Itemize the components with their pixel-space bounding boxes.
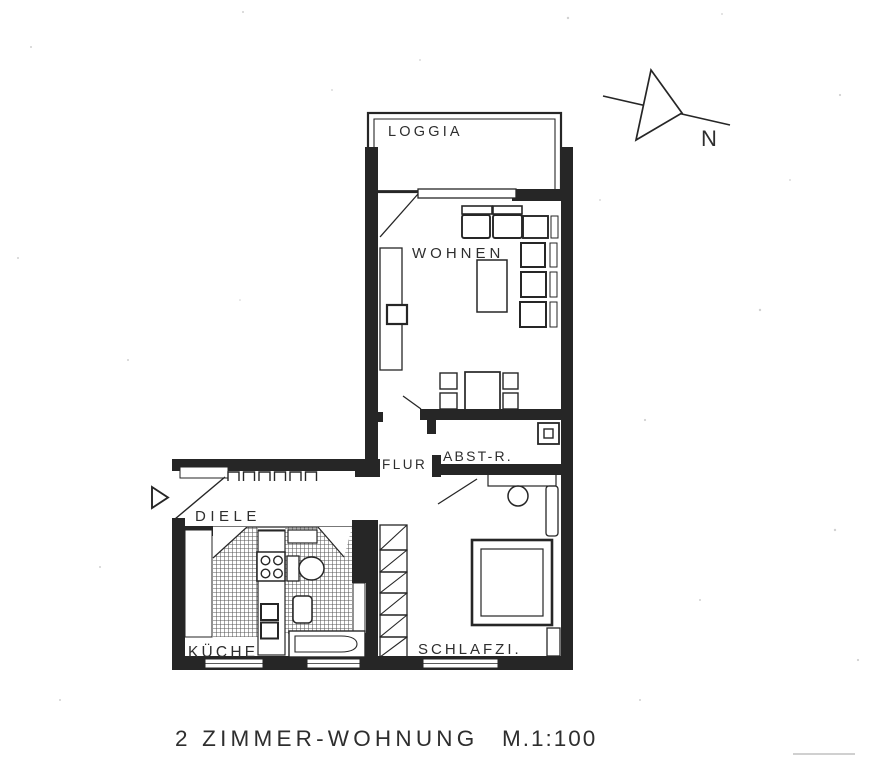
living-door-swing [403, 396, 421, 409]
bedroom-furniture [380, 473, 560, 657]
coat-hooks [228, 472, 317, 481]
balcony-door-swing [380, 194, 418, 237]
stool [508, 486, 528, 506]
living-furniture [380, 206, 558, 410]
coffee-table [477, 260, 507, 312]
entrance-door-recess [180, 467, 228, 478]
wardrobe [380, 525, 407, 657]
label-bedroom: SCHLAFZI. [418, 641, 522, 658]
wall-entry-top-junction [355, 459, 380, 477]
entrance-arrow-icon [152, 487, 168, 508]
wall-living-left [365, 147, 378, 477]
wall-seating-column [520, 243, 557, 327]
tv-box [387, 305, 407, 324]
bedroom-door-swing [438, 479, 477, 504]
armchair [523, 216, 548, 238]
label-kitchen: KÜCHE [188, 643, 258, 661]
stove [257, 552, 285, 581]
armchair-side-strip [551, 216, 558, 238]
caption: 2 ZIMMER-WOHNUNG M.1:100 [175, 726, 597, 751]
window-bath [307, 659, 360, 668]
label-loggia: LOGGIA [388, 124, 463, 140]
bathtub [289, 631, 365, 657]
nightstand [547, 628, 560, 656]
north-arrow-icon: N [603, 70, 730, 151]
caption-scale: M.1:100 [502, 726, 597, 751]
toilet [287, 556, 324, 581]
label-entry-hall: DIELE [195, 508, 261, 525]
wall-bath-bedroom-b [352, 520, 366, 583]
wall-stub-below-living [427, 420, 436, 434]
wall-loggia-divider-bar [512, 189, 561, 201]
wall-living-left-notch [378, 412, 383, 422]
floor-plan-canvas: N LOGGIA WOHNEN FLUR ABST-R. DIELE KÜCHE… [0, 0, 873, 757]
duct-niche [353, 583, 365, 633]
compass-north-label: N [701, 126, 718, 151]
window-bedroom [423, 659, 498, 668]
balcony-door-leaf [418, 189, 516, 198]
kitchen-counter-left [185, 530, 212, 637]
tall-cabinet [546, 486, 558, 536]
scanned-floor-plan-page: N LOGGIA WOHNEN FLUR ABST-R. DIELE KÜCHE… [0, 0, 873, 757]
kitchen-appliance-upper [261, 604, 278, 620]
dining-set [440, 372, 518, 410]
washbasin [293, 596, 312, 623]
label-living-room: WOHNEN [412, 245, 504, 262]
label-storage-room: ABST-R. [443, 448, 513, 464]
storage-room-items [538, 423, 559, 444]
bath-shelf [288, 530, 317, 543]
label-hallway: FLUR [382, 457, 427, 472]
bed [472, 540, 552, 625]
electric-box-icon [538, 423, 559, 444]
sofa [462, 206, 522, 238]
caption-title: 2 ZIMMER-WOHNUNG [175, 726, 478, 751]
wall-bath-bedroom-a [366, 520, 378, 658]
entry-hall-items [228, 472, 317, 481]
scan-edge-artifact [793, 753, 855, 755]
wall-east-exterior [561, 147, 573, 668]
wall-west-exterior [172, 518, 185, 668]
kitchen-appliance-lower [261, 623, 278, 639]
